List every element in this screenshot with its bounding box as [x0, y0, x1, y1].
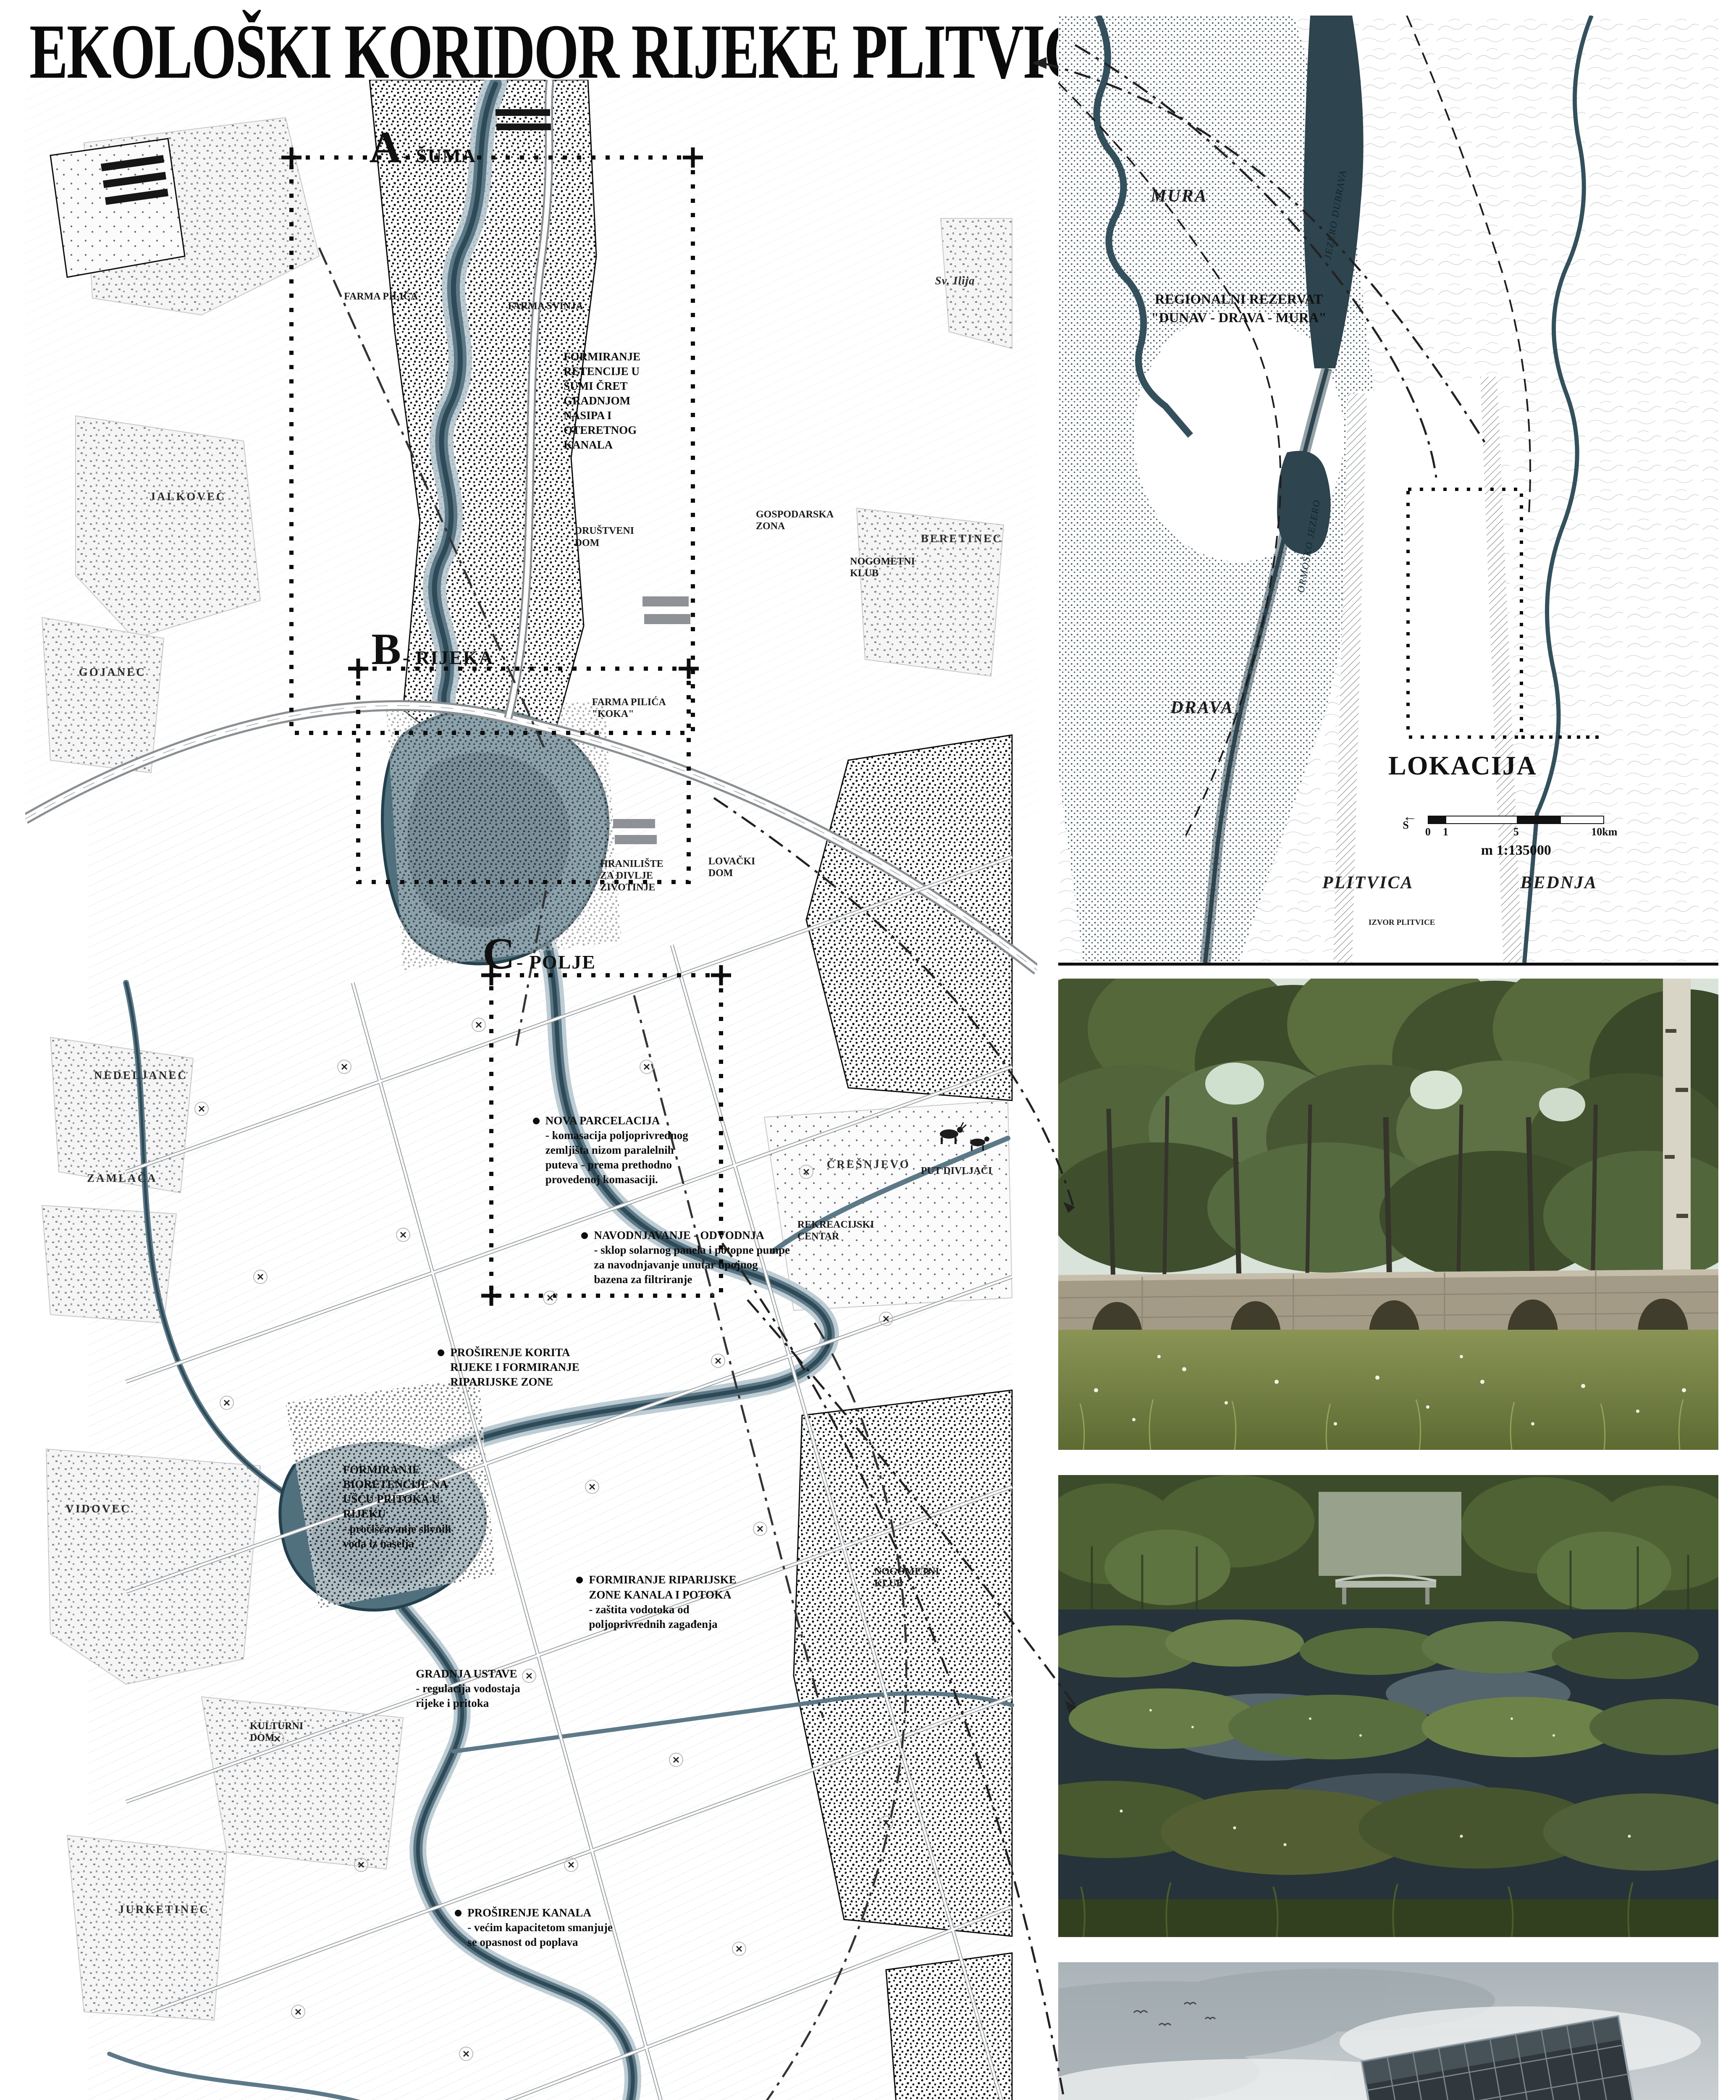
- annotation-parcelacija: NOVA PARCELACIJA - komasacija poljoprivr…: [545, 1113, 688, 1187]
- annotation-navodnjavanje: NAVODNJAVANJE - ODVODNJA - sklop solarno…: [594, 1228, 790, 1287]
- place-nedeljanec: NEDELJANEC: [94, 1069, 188, 1082]
- annotation-bioretencija: FORMIRANJE BIORETENCIJE NA UŠĆU PRITOKA …: [343, 1462, 451, 1551]
- poster: EKOLOŠKI KORIDOR RIJEKE PLITVICE: [0, 0, 1736, 2100]
- forest-render-graphic: [1058, 979, 1718, 1450]
- label-izvor-plitvice: IZVOR PLITVICE: [1369, 918, 1435, 927]
- label-mura: MURA: [1151, 186, 1208, 207]
- main-map-graphic: [25, 80, 1037, 2100]
- place-beretinec: BERETINEC: [921, 532, 1003, 546]
- location-north-arrow-icon: ←: [1403, 815, 1417, 819]
- label-plitvica: PLITVICA: [1322, 873, 1414, 894]
- location-map: MURA REGIONALNI REZERVAT "DUNAV - DRAVA …: [1058, 16, 1718, 966]
- place-jalkovec: JALKOVEC: [149, 490, 226, 504]
- place-nogometni-klub: NOGOMETNI KLUB: [850, 556, 915, 580]
- location-map-scale-text: m 1:135000: [1428, 843, 1604, 858]
- place-zamlaca: ZAMLAČA: [87, 1172, 157, 1185]
- place-farma-svinja: FARMA SVINJA: [508, 300, 583, 312]
- place-vidovec: VIDOVEC: [66, 1502, 131, 1516]
- place-hraniliste: HRANILIŠTE ZA DIVLJE ŽIVOTINJE: [600, 858, 663, 894]
- annotation-riparijska-zona: FORMIRANJE RIPARIJSKE ZONE KANALA I POTO…: [589, 1572, 736, 1631]
- place-sv-ilija: Sv. Ilija: [935, 274, 975, 288]
- place-nogometni-klub-2: NOGOMETNI KLUB: [874, 1566, 939, 1590]
- location-north-arrow: ← S: [1403, 815, 1417, 832]
- section-label-a: A - ŠUMA: [369, 122, 476, 173]
- solar-render-image: [1058, 1962, 1718, 2100]
- place-gospodarska-zona: GOSPODARSKA ZONA: [756, 509, 834, 533]
- annotation-ustava: GRADNJA USTAVE - regulacija vodostaja ri…: [416, 1667, 520, 1711]
- wetland-render-graphic: [1058, 1475, 1718, 1937]
- section-label-c: C - POLJE: [483, 928, 596, 979]
- wetland-render-image: [1058, 1475, 1718, 1937]
- label-lokacija: LOKACIJA: [1388, 750, 1537, 782]
- label-rezervat: REGIONALNI REZERVAT "DUNAV - DRAVA - MUR…: [1151, 290, 1327, 328]
- main-plan-map: A - ŠUMA B - RIJEKA C - POLJE FORMIRANJE…: [25, 80, 1037, 2100]
- location-map-scalebar: ← S 0 1 5 10km m 1:135000: [1428, 816, 1604, 858]
- annotation-prosirenje-kanala: PROŠIRENJE KANALA - većim kapacitetom sm…: [467, 1906, 613, 1950]
- place-rekreacijski-centar: REKREACIJSKI CENTAR: [797, 1219, 874, 1243]
- place-kulturni-dom: KULTURNI DOM: [250, 1720, 303, 1744]
- annotation-prosirenje-korita: PROŠIRENJE KORITA RIJEKE I FORMIRANJE RI…: [450, 1345, 580, 1389]
- place-cresnjevo: ČREŠNJEVO: [827, 1158, 910, 1171]
- place-farma-koka: FARMA PILIĆA "KOKA": [592, 696, 666, 720]
- place-gojanec: GOJANEC: [79, 666, 146, 679]
- label-bednja: BEDNJA: [1520, 873, 1597, 894]
- place-jurketinec: JURKETINEC: [118, 1903, 210, 1916]
- place-farma-pilica: FARMA PILIĆA: [344, 291, 418, 302]
- solar-render-graphic: [1058, 1962, 1718, 2100]
- label-drava: DRAVA: [1170, 698, 1234, 719]
- place-put-divljaci: PUT DIVLJAČI: [921, 1165, 992, 1177]
- forest-render-image: [1058, 979, 1718, 1450]
- location-map-graphic: [1058, 16, 1718, 963]
- place-lovacki-dom: LOVAČKI DOM: [708, 856, 755, 879]
- section-label-b: B - RIJEKA: [371, 624, 493, 675]
- place-drustveni-dom: DRUŠTVENI DOM: [575, 525, 634, 549]
- annotation-retencija: FORMIRANJE RETENCIJE U ŠUMI ČRET GRADNJO…: [564, 349, 640, 453]
